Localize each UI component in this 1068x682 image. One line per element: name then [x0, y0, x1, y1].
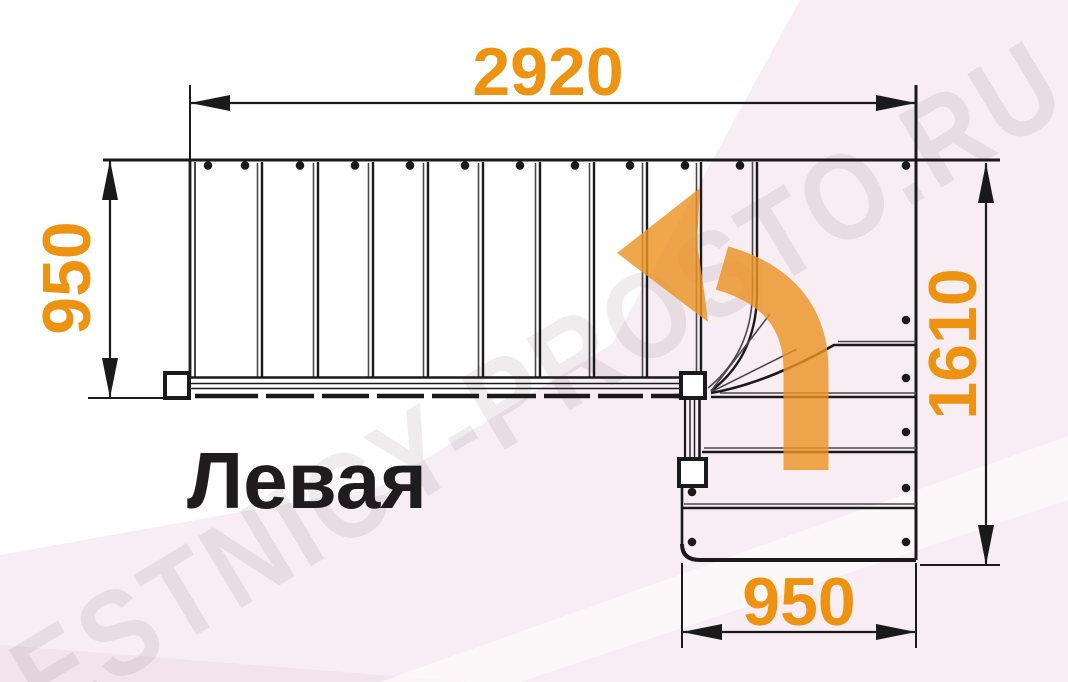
fastener-dot-top [406, 161, 415, 170]
newel-post-left [165, 373, 189, 398]
fastener-dot-top [204, 161, 213, 170]
fastener-dot-top [241, 161, 250, 170]
fastener-dot-top [736, 161, 745, 170]
fastener-dot-top [461, 161, 470, 170]
fastener-dot-right [902, 374, 911, 383]
fastener-dot-top [296, 161, 305, 170]
bottom-dim-label: 950 [742, 564, 855, 640]
fastener-dot-right [902, 428, 911, 437]
right-dim-label: 1610 [915, 268, 991, 419]
left-dim-arrow-top [102, 160, 118, 200]
staircase-plan-page: LESTNICY-PROSTO.RU [0, 0, 1068, 682]
fastener-dot-left [688, 538, 697, 547]
fastener-dot-left [688, 488, 697, 497]
newel-post-lower [679, 459, 706, 486]
fastener-dot-top [626, 161, 635, 170]
left-dim-arrow-bottom [102, 358, 118, 398]
fastener-dot-top [681, 161, 690, 170]
fastener-dot-top [516, 161, 525, 170]
fastener-dot-top [351, 161, 360, 170]
fastener-dot-right [902, 316, 911, 325]
top-dim-label: 2920 [472, 34, 623, 110]
fastener-dot-top [902, 161, 911, 170]
staircase-plan-drawing: LESTNICY-PROSTO.RU [0, 0, 1068, 682]
plan-title: Левая [187, 436, 427, 525]
fastener-dot-top [571, 161, 580, 170]
left-dim-label: 950 [29, 221, 105, 334]
top-dim-arrow-left [190, 95, 230, 111]
fastener-dot-right [902, 484, 911, 493]
newel-post-corner [681, 373, 705, 398]
fastener-dot-right [902, 538, 911, 547]
